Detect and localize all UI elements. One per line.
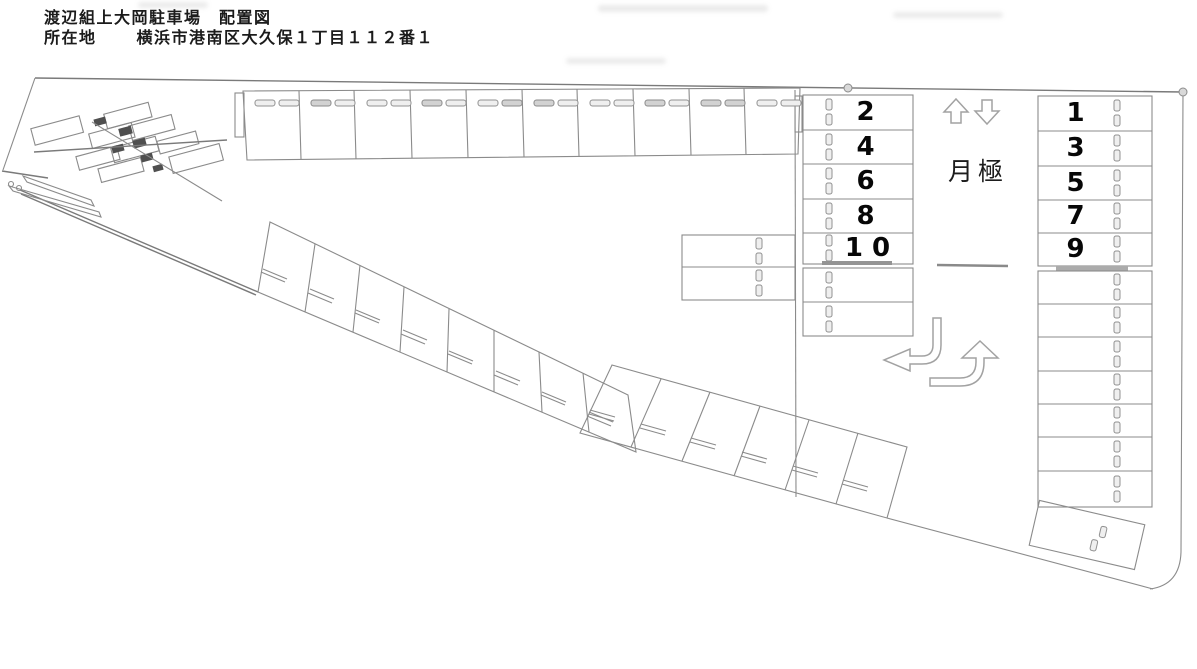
building-sketch (9, 102, 228, 217)
center-side-spaces (682, 235, 795, 300)
odd-space-label-1: 3 (1040, 132, 1112, 164)
tilted-corner-space (1029, 500, 1145, 569)
odd-space-label-2: 5 (1040, 167, 1112, 199)
site-plan-drawing (0, 0, 1197, 669)
up-arrow-icon (944, 99, 968, 123)
even-space-label-4: 10 (824, 232, 914, 264)
title-block: 渡辺組上大岡駐車場 配置図 所在地 横浜市港南区大久保１丁目１１２番１ (44, 8, 434, 48)
page-title: 渡辺組上大岡駐車場 配置図 (44, 8, 434, 28)
location-row: 所在地 横浜市港南区大久保１丁目１１２番１ (44, 28, 434, 48)
location-label: 所在地 (44, 28, 97, 48)
diagonal-row-upper (258, 222, 636, 452)
odd-space-label-4: 9 (1040, 233, 1112, 265)
even-space-label-3: 8 (824, 200, 908, 232)
even-space-label-0: 2 (824, 96, 908, 128)
down-arrow-icon (975, 100, 999, 124)
even-space-label-2: 6 (824, 165, 908, 197)
odd-space-label-3: 7 (1040, 200, 1112, 232)
parking-layout-page: 渡辺組上大岡駐車場 配置図 所在地 横浜市港南区大久保１丁目１１２番１ 2 4 … (0, 0, 1197, 669)
location-value: 横浜市港南区大久保１丁目１１２番１ (137, 28, 435, 48)
odd-space-label-0: 1 (1040, 97, 1112, 129)
lane-stop-line (937, 265, 1008, 266)
even-space-label-1: 4 (824, 131, 908, 163)
monthly-parking-label: 月極 (938, 152, 1018, 188)
top-parking-row (235, 88, 802, 160)
diagonal-row-lower (580, 365, 907, 518)
